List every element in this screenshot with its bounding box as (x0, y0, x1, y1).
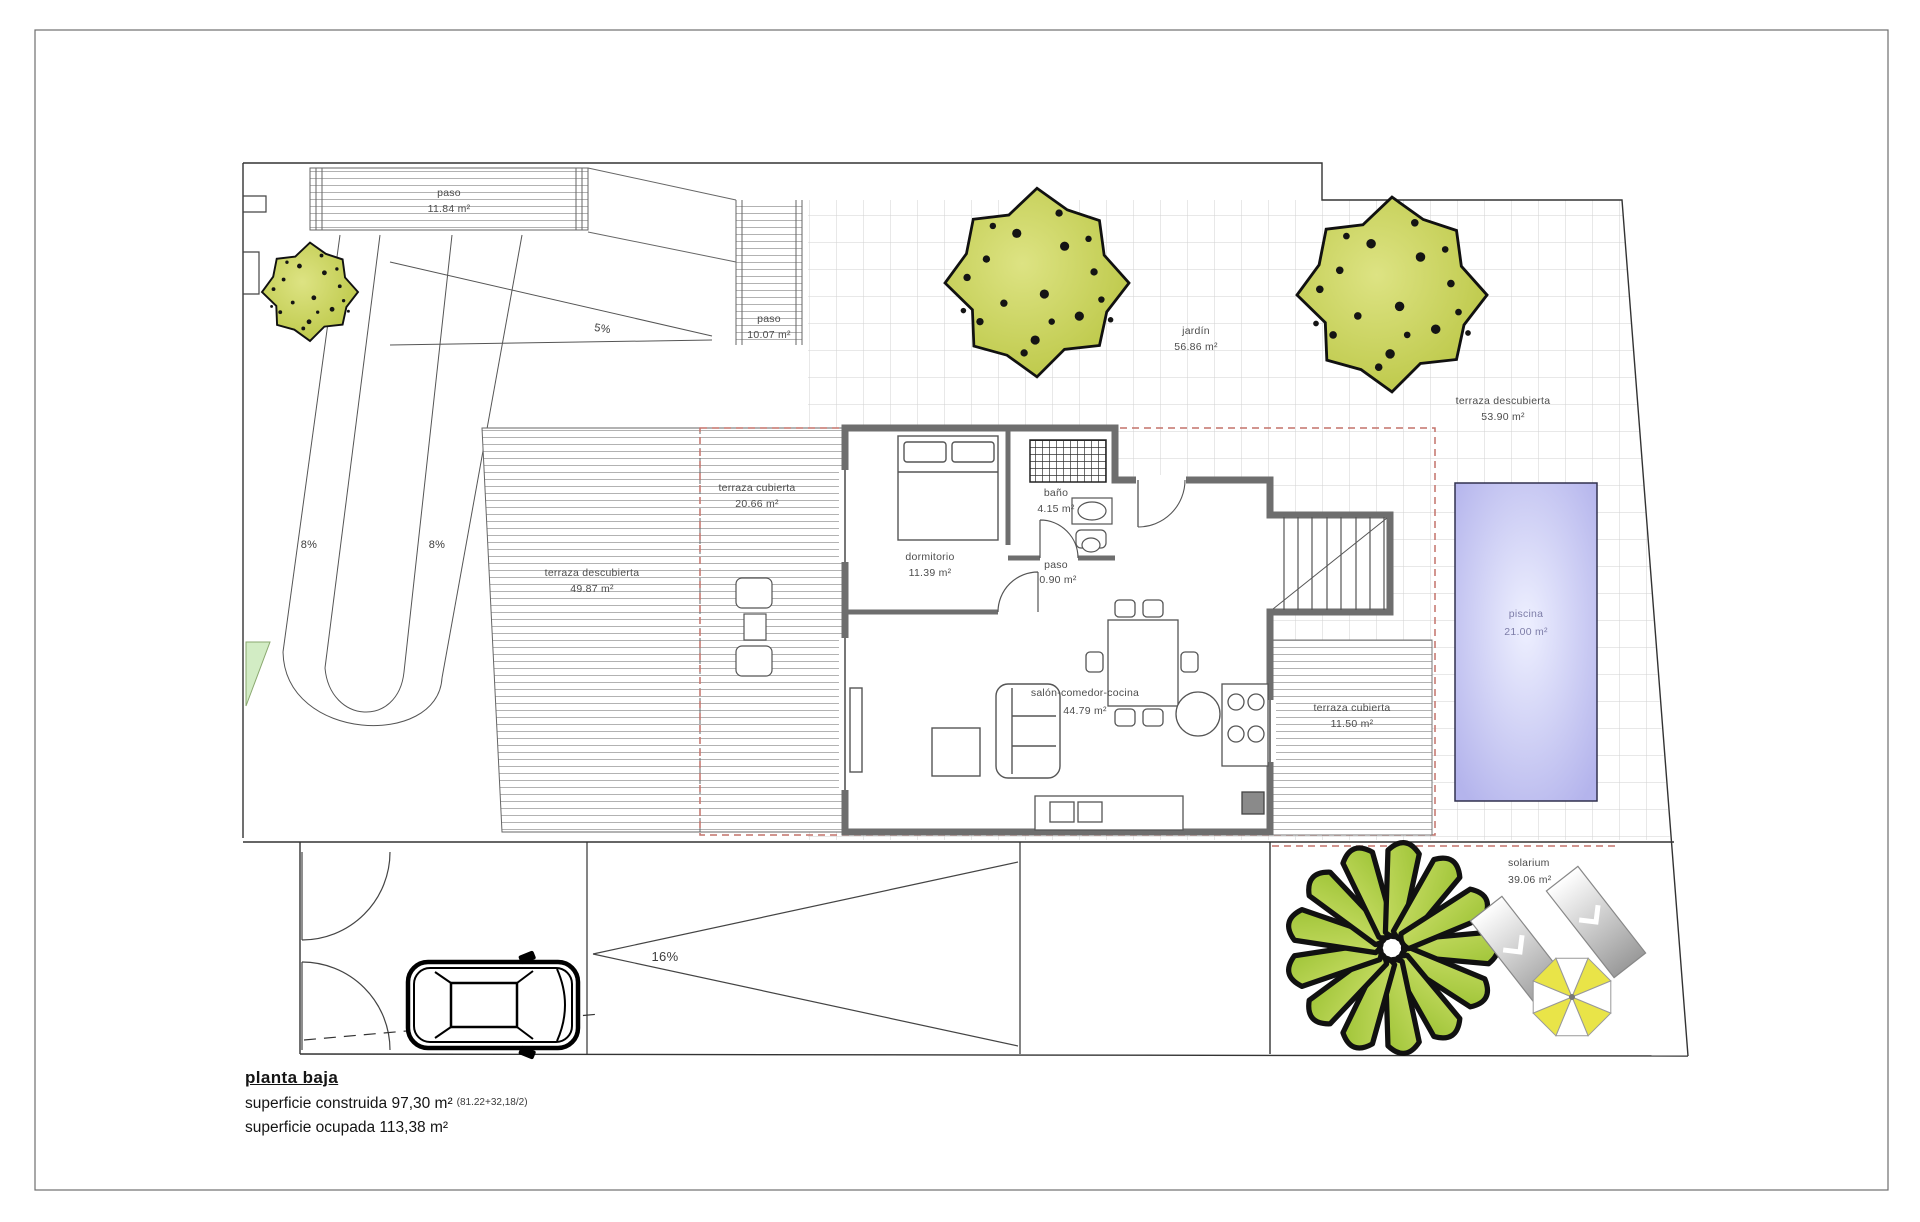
label-piscina: piscina (1509, 608, 1543, 620)
label-paso-interior-area: 0.90 m² (1039, 574, 1077, 586)
drawing-sheet: paso 11.84 m² paso 10.07 m² jardín 56.86… (0, 0, 1920, 1222)
pillow (904, 442, 946, 462)
label-slope-rampa-izq: 8% (301, 539, 318, 551)
floor-plan-drawing: paso 11.84 m² paso 10.07 m² jardín 56.86… (0, 0, 1920, 1222)
terrace-chair (736, 646, 772, 676)
label-solarium-area: 39.06 m² (1508, 874, 1552, 886)
burner (1228, 694, 1244, 710)
pillow (952, 442, 994, 462)
label-terraza-descubierta-este-area: 53.90 m² (1481, 411, 1525, 423)
label-slope-garaje: 16% (652, 949, 679, 964)
label-solarium: solarium (1508, 857, 1550, 869)
label-jardin-area: 56.86 m² (1174, 341, 1218, 353)
label-terraza-cubierta-este-area: 11.50 m² (1331, 718, 1374, 730)
label-paso-top-area: 11.84 m² (428, 203, 471, 215)
built-area-note: (81.22+32,18/2) (457, 1097, 528, 1108)
label-slope-rampa-der: 8% (429, 539, 446, 551)
tv-cabinet (850, 688, 862, 772)
terrace-chair (736, 578, 772, 608)
sink-bowl (1050, 802, 1074, 822)
label-bano: baño (1044, 487, 1068, 499)
built-area-line: superficie construida 97,30 m²(81.22+32,… (245, 1095, 528, 1113)
label-terraza-cubierta-oeste: terraza cubierta (719, 482, 796, 494)
parasol (1533, 958, 1611, 1036)
bedroom-furniture (898, 436, 998, 540)
label-piscina-area: 21.00 m² (1504, 626, 1548, 638)
appliance-block (1242, 792, 1264, 814)
plan-footer: planta baja superficie construida 97,30 … (245, 1068, 528, 1143)
chair (1181, 652, 1198, 672)
label-paso-mid-area: 10.07 m² (747, 329, 791, 341)
shower-tray (1030, 440, 1106, 482)
label-dormitorio: dormitorio (905, 551, 954, 563)
coffee-table (932, 728, 980, 776)
chair (1115, 709, 1135, 726)
round-table (1176, 692, 1220, 736)
label-terraza-descubierta-oeste-area: 49.87 m² (570, 583, 614, 595)
label-terraza-cubierta-oeste-area: 20.66 m² (735, 498, 779, 510)
terrace-east-covered (1270, 640, 1432, 835)
chair (1115, 600, 1135, 617)
pool (1455, 483, 1597, 801)
built-area-value: superficie construida 97,30 m² (245, 1095, 453, 1112)
label-paso-interior: paso (1044, 559, 1068, 571)
label-dormitorio-area: 11.39 m² (909, 567, 952, 579)
chair (1086, 652, 1103, 672)
sink-bowl (1078, 802, 1102, 822)
toilet-bowl (1082, 538, 1100, 552)
car (408, 950, 578, 1059)
label-jardin: jardín (1181, 325, 1210, 337)
burner (1248, 726, 1264, 742)
terrace-side-table (744, 614, 766, 640)
burner (1248, 694, 1264, 710)
label-terraza-cubierta-este: terraza cubierta (1314, 702, 1391, 714)
label-slope-acceso: 5% (593, 322, 611, 336)
label-salon: salón-comedor-cocina (1031, 687, 1139, 699)
plan-title: planta baja (245, 1068, 528, 1088)
burner (1228, 726, 1244, 742)
label-paso-top: paso (437, 187, 461, 199)
label-terraza-descubierta-oeste: terraza descubierta (545, 567, 640, 579)
label-terraza-descubierta-este: terraza descubierta (1456, 395, 1551, 407)
chair (1143, 600, 1163, 617)
label-paso-mid: paso (757, 313, 781, 325)
occupied-area-line: superficie ocupada 113,38 m² (245, 1119, 528, 1137)
label-salon-area: 44.79 m² (1063, 705, 1107, 717)
chair (1143, 709, 1163, 726)
label-bano-area: 4.15 m² (1037, 503, 1075, 515)
washbasin (1078, 502, 1106, 520)
